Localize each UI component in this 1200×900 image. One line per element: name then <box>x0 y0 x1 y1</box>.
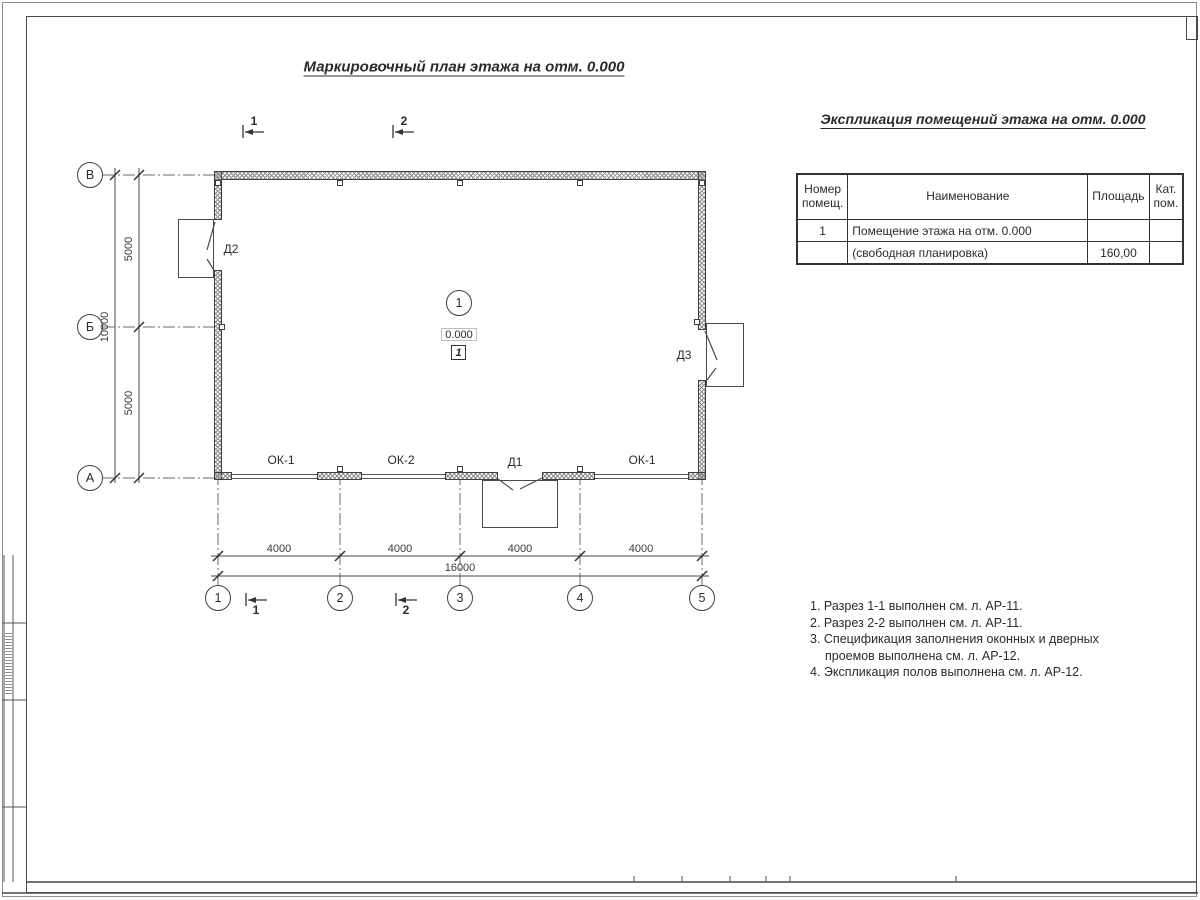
room-number: 1 <box>456 296 463 310</box>
dim-16000-total: 16000 <box>445 562 476 574</box>
note-line: 1. Разрез 1-1 выполнен см. л. АР-11. <box>810 598 1099 615</box>
elevation-value: 0.000 <box>445 329 473 341</box>
axis-label: 3 <box>457 591 464 605</box>
dim-4000-1: 4000 <box>267 543 291 555</box>
wall-top <box>214 171 706 180</box>
title-block <box>2 876 1198 893</box>
window-label-ok2: ОК-2 <box>388 453 415 467</box>
wall-node-square <box>337 180 343 186</box>
dim-5000-upper: 5000 <box>123 237 135 261</box>
dim-10000-total: 10000 <box>99 312 111 343</box>
table-row: 1 Помещение этажа на отм. 0.000 <box>797 220 1183 242</box>
wall-right-upper <box>698 171 706 330</box>
axis-label: 2 <box>337 591 344 605</box>
table-header-row: Номер помещ. Наименование Площадь Кат. п… <box>797 174 1183 220</box>
axis-label: В <box>86 168 94 182</box>
wall-left-upper <box>214 171 222 220</box>
axis-circle-1: 1 <box>205 585 231 611</box>
col-header-name: Наименование <box>848 174 1088 220</box>
cell-room-name: Помещение этажа на отм. 0.000 <box>848 220 1088 242</box>
wall-node-square <box>215 180 221 186</box>
note-line: 2. Разрез 2-2 выполнен см. л. АР-11. <box>810 615 1099 632</box>
axis-label: А <box>86 471 94 485</box>
window-label-ok1-left: ОК-1 <box>268 453 295 467</box>
spec-table-title: Экспликация помещений этажа на отм. 0.00… <box>821 111 1146 127</box>
axis-circle-4: 4 <box>567 585 593 611</box>
wall-node-square <box>577 466 583 472</box>
cell-room-name: (свободная планировка) <box>848 242 1088 265</box>
linework-layer <box>0 0 1200 900</box>
door-label-d3: Д3 <box>677 348 692 362</box>
dim-4000-3: 4000 <box>508 543 532 555</box>
wall-bottom-pier-4 <box>542 472 595 480</box>
section-2-top-number: 2 <box>401 114 408 128</box>
section-1-bottom-number: 1 <box>253 603 260 617</box>
note-line: 3. Спецификация заполнения оконных и две… <box>810 631 1099 648</box>
wall-bottom-pier-1 <box>214 472 232 480</box>
side-stamp <box>2 555 26 882</box>
wall-bottom-pier-2 <box>317 472 362 480</box>
page-title: Маркировочный план этажа на отм. 0.000 <box>304 59 625 76</box>
notes-list: 1. Разрез 1-1 выполнен см. л. АР-11. 2. … <box>810 598 1099 681</box>
col-header-category: Кат. пом. <box>1149 174 1183 220</box>
axis-circle-a: А <box>77 465 103 491</box>
door-label-d2: Д2 <box>224 242 239 256</box>
wall-left-lower <box>214 270 222 480</box>
cell-room-number <box>797 242 848 265</box>
axis-label: Б <box>86 320 94 334</box>
porch-bottom <box>482 480 558 528</box>
floor-type-number: 1 <box>455 347 461 359</box>
note-line: 4. Экспликация полов выполнена см. л. АР… <box>810 664 1099 681</box>
wall-node-square <box>577 180 583 186</box>
cell-area: 160,00 <box>1088 242 1149 265</box>
wall-bottom-pier-3 <box>445 472 498 480</box>
wall-right-lower <box>698 380 706 480</box>
cell-area <box>1088 220 1149 242</box>
explication-table: Номер помещ. Наименование Площадь Кат. п… <box>796 173 1184 265</box>
section-mark-arrows <box>243 125 417 606</box>
cell-room-number: 1 <box>797 220 848 242</box>
dim-4000-4: 4000 <box>629 543 653 555</box>
wall-node-square <box>694 319 700 325</box>
axis-label: 1 <box>215 591 222 605</box>
table-row: (свободная планировка) 160,00 <box>797 242 1183 265</box>
wall-node-square <box>457 466 463 472</box>
axis-circle-3: 3 <box>447 585 473 611</box>
porch-left <box>178 219 214 278</box>
axis-label: 4 <box>577 591 584 605</box>
porch-right <box>706 323 744 387</box>
drawing-sheet: Маркировочный план этажа на отм. 0.000 Э… <box>0 0 1200 900</box>
note-line-continuation: проемов выполнена см. л. АР-12. <box>810 648 1099 665</box>
elevation-label: 0.000 <box>441 328 477 341</box>
dim-5000-lower: 5000 <box>123 391 135 415</box>
wall-node-square <box>219 324 225 330</box>
cell-category <box>1149 220 1183 242</box>
axis-circle-v: В <box>77 162 103 188</box>
window-label-ok1-right: ОК-1 <box>629 453 656 467</box>
col-header-area: Площадь <box>1088 174 1149 220</box>
cell-category <box>1149 242 1183 265</box>
section-1-top-number: 1 <box>251 114 258 128</box>
wall-node-square <box>699 180 705 186</box>
wall-node-square <box>457 180 463 186</box>
section-2-bottom-number: 2 <box>403 603 410 617</box>
wall-bottom-pier-5 <box>688 472 706 480</box>
floor-type-mark: 1 <box>451 345 466 360</box>
axis-circle-2: 2 <box>327 585 353 611</box>
axis-circle-5: 5 <box>689 585 715 611</box>
axis-label: 5 <box>699 591 706 605</box>
door-label-d1: Д1 <box>508 455 523 469</box>
col-header-room-number: Номер помещ. <box>797 174 848 220</box>
dim-4000-2: 4000 <box>388 543 412 555</box>
room-number-circle: 1 <box>446 290 472 316</box>
wall-node-square <box>337 466 343 472</box>
